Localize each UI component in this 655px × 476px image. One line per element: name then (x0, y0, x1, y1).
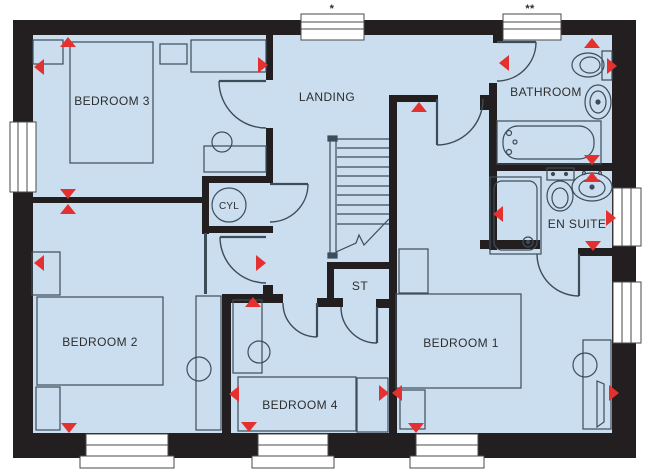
window-bedroom1-right (613, 282, 641, 343)
room-label-landing: LANDING (299, 90, 355, 104)
wall-landing-bedroom1 (389, 95, 438, 102)
room-label-bedroom3: BEDROOM 3 (74, 94, 150, 108)
window-note-landing: * (330, 3, 335, 15)
wall-bedroom2-nook (204, 233, 207, 294)
wall-bedroom1-door-jamb (480, 95, 490, 110)
room-label-ensuite: EN SUITE (548, 217, 607, 231)
window-landing (301, 14, 364, 40)
wall-bedroom3-right-upper (266, 35, 273, 80)
wall-exterior-left (13, 20, 33, 446)
floor-plan-drawing: BEDROOM 3 LANDING BATHROOM CYL EN SUITE … (0, 0, 655, 476)
window-note-bathroom: ** (525, 3, 535, 15)
wall-bedroom3-bedroom2 (33, 197, 206, 203)
wall-st-bottom-right (376, 299, 389, 308)
wall-cyl-top (202, 176, 273, 183)
room-label-bedroom1: BEDROOM 1 (423, 336, 499, 350)
wall-ensuite-bottom-right (578, 248, 614, 256)
window-bathroom (503, 14, 561, 40)
floor-plan: BEDROOM 3 LANDING BATHROOM CYL EN SUITE … (0, 0, 655, 476)
wall-cyl-left (202, 176, 209, 234)
window-bedroom2 (80, 434, 174, 468)
wall-bedroom2-bedroom4 (222, 294, 231, 434)
room-label-bedroom2: BEDROOM 2 (62, 335, 138, 349)
window-bedroom1-bottom (410, 434, 484, 468)
window-bedroom4 (252, 434, 334, 468)
window-bedroom3 (10, 122, 36, 192)
wall-st-left (327, 262, 334, 307)
wall-cyl-bottom (202, 226, 273, 233)
room-label-st: ST (352, 279, 368, 293)
room-label-bathroom: BATHROOM (510, 85, 582, 99)
wall-bedroom3-right-lower (266, 128, 273, 183)
wall-st-top (327, 262, 389, 269)
wall-ensuite-bottom-left (480, 240, 540, 249)
room-label-cyl: CYL (219, 201, 239, 212)
window-ensuite (613, 188, 641, 246)
room-label-bedroom4: BEDROOM 4 (262, 398, 338, 412)
